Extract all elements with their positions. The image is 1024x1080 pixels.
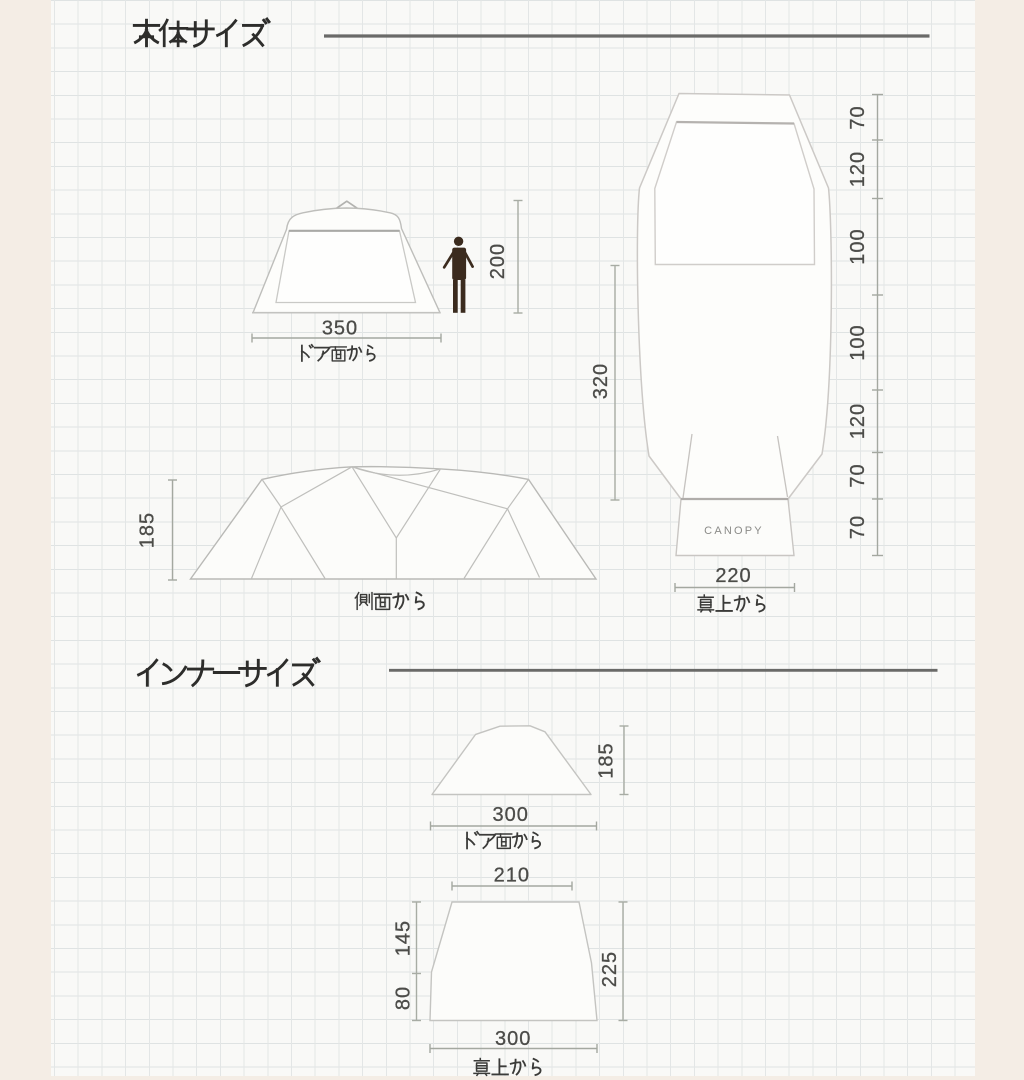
svg-text:70: 70 [847, 515, 869, 539]
svg-text:185: 185 [596, 742, 618, 778]
svg-text:350: 350 [322, 318, 358, 340]
svg-text:185: 185 [137, 512, 159, 548]
svg-text:145: 145 [393, 920, 415, 956]
svg-text:300: 300 [495, 1028, 531, 1050]
svg-text:70: 70 [847, 463, 869, 487]
svg-text:100: 100 [847, 228, 869, 264]
svg-text:120: 120 [847, 403, 869, 439]
svg-text:300: 300 [493, 804, 529, 826]
svg-text:210: 210 [494, 865, 530, 887]
svg-text:CANOPY: CANOPY [704, 525, 764, 537]
svg-text:100: 100 [847, 324, 869, 360]
svg-text:225: 225 [599, 951, 621, 987]
svg-text:220: 220 [715, 565, 751, 587]
svg-text:70: 70 [847, 105, 869, 129]
svg-text:80: 80 [393, 986, 415, 1010]
svg-text:120: 120 [847, 151, 869, 187]
svg-text:320: 320 [590, 363, 612, 399]
svg-text:200: 200 [487, 243, 509, 279]
